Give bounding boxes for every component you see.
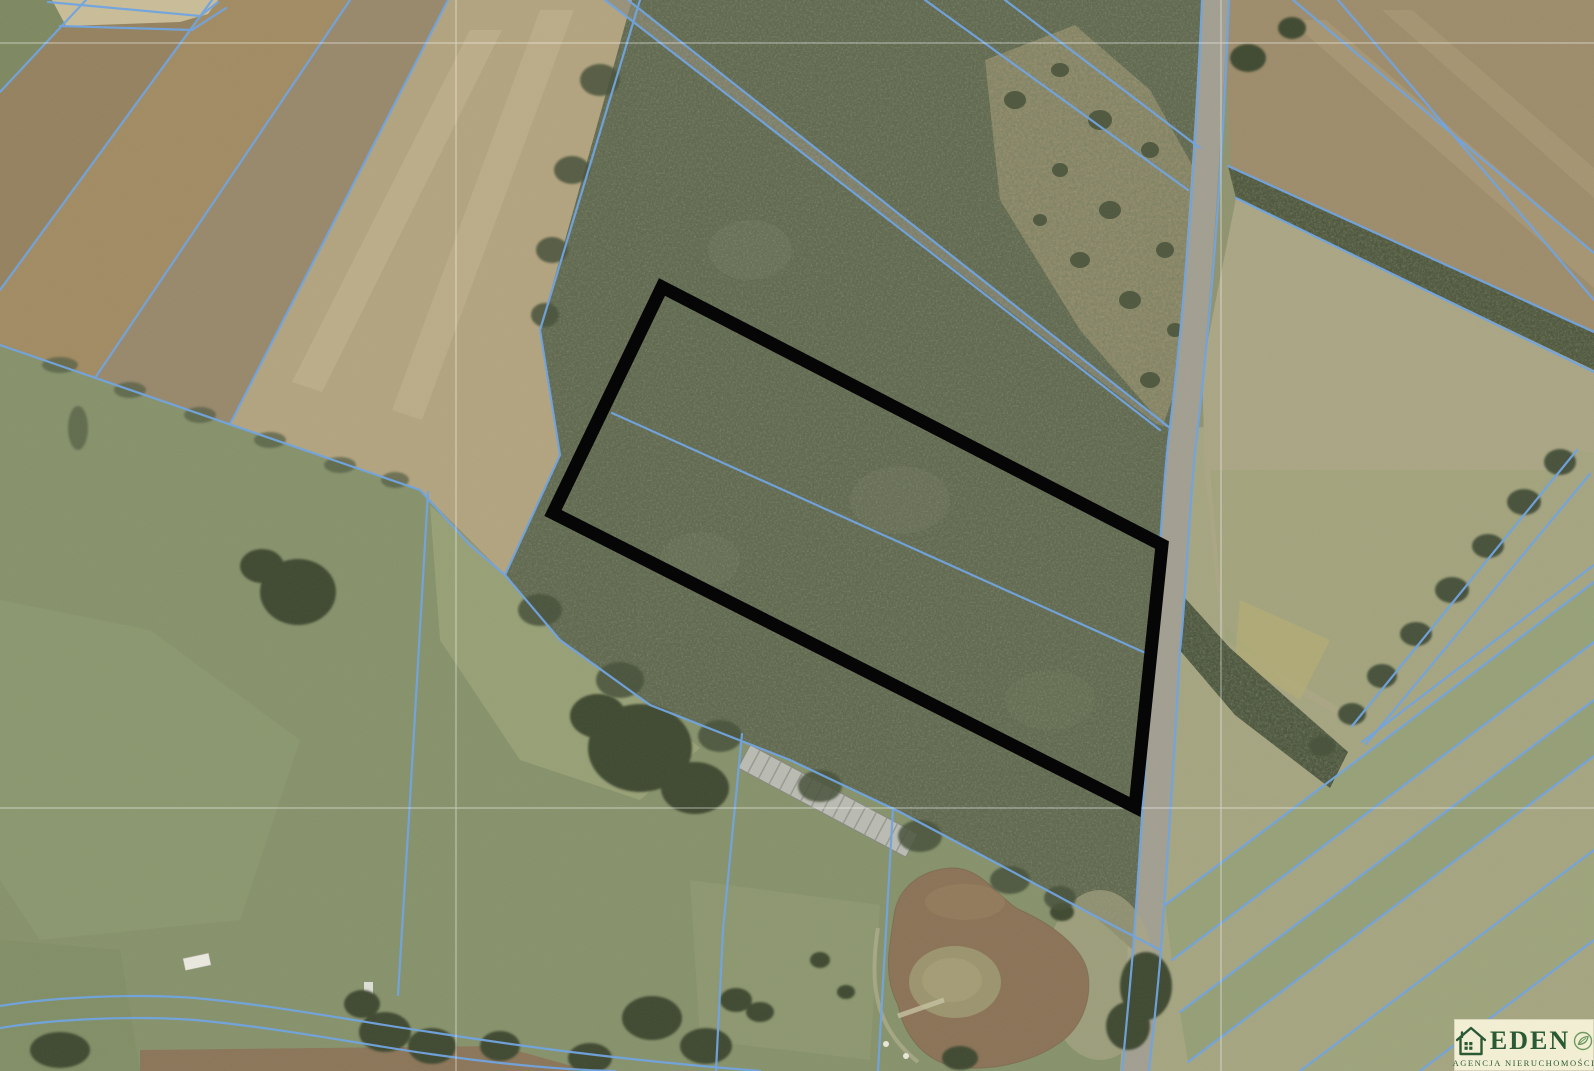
house-icon <box>1454 1025 1488 1057</box>
leaf-icon <box>1572 1030 1594 1052</box>
satellite-map <box>0 0 1594 1071</box>
listing-map-screenshot: EDEN AGENCJA NIERUCHOMOŚCI <box>0 0 1594 1071</box>
agency-logo: EDEN AGENCJA NIERUCHOMOŚCI <box>1454 1019 1594 1071</box>
logo-tagline: AGENCJA NIERUCHOMOŚCI <box>1453 1058 1594 1068</box>
logo-brand: EDEN <box>1490 1028 1570 1054</box>
logo-row: EDEN <box>1454 1025 1594 1057</box>
grain-overlay <box>0 0 1594 1071</box>
